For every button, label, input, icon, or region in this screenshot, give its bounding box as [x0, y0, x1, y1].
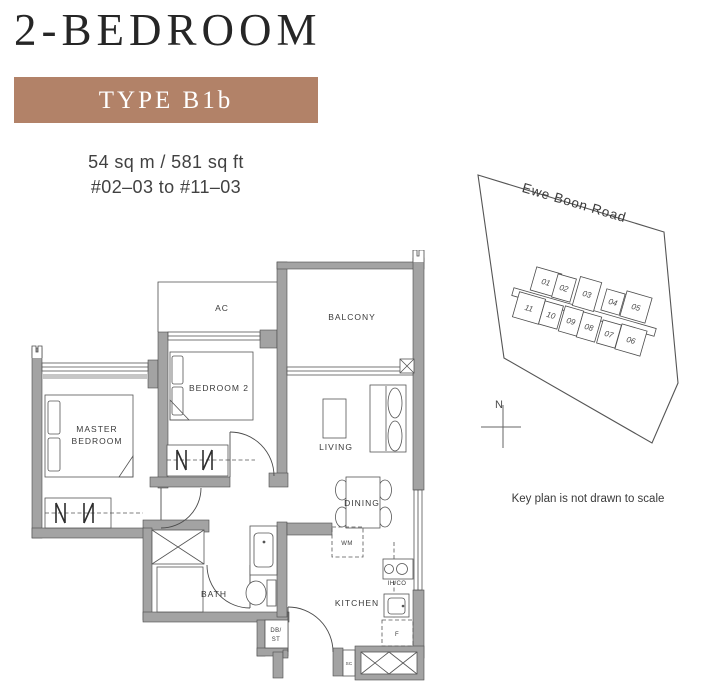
bedroom2-wardrobe	[167, 445, 255, 476]
label-wm: WM	[341, 541, 352, 547]
wall-end-symbol	[413, 250, 424, 262]
north-label: N	[495, 399, 503, 411]
label-dbst-1: DB/	[270, 628, 281, 634]
label-bedroom2: BEDROOM 2	[189, 383, 249, 393]
label-master-2: BEDROOM	[72, 436, 123, 446]
area-text: 54 sq m / 581 sq ft	[14, 152, 318, 173]
label-ihco: IH/CO	[388, 581, 407, 587]
page-title: 2-BEDROOM	[14, 4, 434, 56]
label-kitchen: KITCHEN	[335, 598, 379, 608]
label-dbst-2: ST	[272, 637, 280, 643]
dbst-cabinet	[265, 620, 288, 648]
type-banner: TYPE B1b	[14, 77, 318, 123]
key-plan: Ewe Boon Road 01 02 03 04 05 11 10 09	[455, 160, 704, 510]
label-sc: SC	[346, 661, 353, 666]
unit-range-text: #02–03 to #11–03	[14, 177, 318, 198]
floor-plan: AC BALCONY BEDROOM 2 MASTER BEDROOM LIVI…	[25, 250, 435, 689]
keyplan-note: Key plan is not drawn to scale	[512, 493, 665, 505]
label-dining: DINING	[344, 498, 380, 508]
north-compass: N	[481, 399, 521, 448]
label-living: LIVING	[319, 442, 353, 452]
label-ac: AC	[215, 303, 229, 313]
label-fridge: F	[395, 632, 399, 638]
master-wardrobe	[45, 498, 143, 528]
label-balcony: BALCONY	[328, 312, 376, 322]
label-bath: BATH	[201, 589, 227, 599]
floorplan-page: 2-BEDROOM TYPE B1b 54 sq m / 581 sq ft #…	[0, 0, 704, 689]
label-master-1: MASTER	[76, 424, 117, 434]
